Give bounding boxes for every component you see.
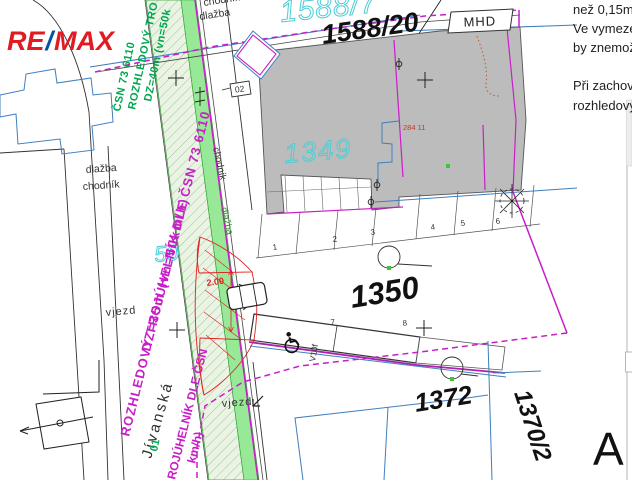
remax-logo-re: RE [7, 26, 45, 56]
note-line-2: Ve vymeze [573, 21, 632, 36]
parcel-1370-2: 1370/2 [508, 387, 557, 466]
parcel-1350: 1350 [348, 270, 422, 315]
mhd-stop-label: MHD [463, 13, 496, 29]
shaft-circle-1 [378, 246, 432, 270]
tree-symbol [495, 184, 529, 218]
sight-bottom-green: 01 [148, 438, 162, 452]
parking-space-2: 2 [332, 234, 338, 244]
parking-space-3: 3 [370, 227, 376, 237]
structure-02-label: 02 [234, 83, 245, 94]
note-line-1: než 0,15m [573, 2, 632, 17]
green-point-marker [446, 164, 450, 168]
section-letter-a: A [593, 423, 624, 475]
parcel-1372: 1372 [412, 379, 474, 418]
parking-space-4: 4 [430, 222, 436, 232]
parking-space-1: 1 [272, 242, 278, 252]
house-sw [20, 360, 99, 449]
sign-v10f: V10f [307, 343, 320, 363]
parking-space-8: 8 [402, 318, 408, 328]
cadastral-map-canvas: 1588/7 1588/20 MHD 02 1349 284 11 1350 1… [0, 0, 632, 480]
remax-logo: RE/MAX [7, 26, 114, 57]
building-number-red: 284 11 [403, 123, 425, 132]
parcel-1349: 1349 [283, 133, 353, 169]
note-line-3: by znemož [573, 40, 632, 55]
parking-space-7: 7 [330, 317, 336, 327]
site-plan-screenshot: RE/MAX [0, 0, 632, 480]
note-text-block: než 0,15m Ve vymeze by znemož Při zachov… [573, 2, 632, 113]
remax-logo-max: MAX [54, 26, 114, 56]
label-vjezd-bottom: vjezd [221, 396, 252, 410]
label-dlazba-left: dlažba [85, 162, 117, 176]
note-line-5: rozhledový [573, 98, 632, 113]
parking-space-5: 5 [460, 218, 466, 228]
remax-logo-slash: / [45, 26, 55, 56]
building-1349 [258, 27, 526, 214]
label-chodnik-left: chodník [82, 178, 120, 193]
note-line-4: Při zachova [573, 78, 632, 93]
label-vjezd-left: vjezd [105, 304, 137, 319]
parking-space-6: 6 [495, 216, 501, 226]
neighbour-building-outline-nw [0, 69, 113, 154]
panel-corner-box [626, 352, 632, 372]
